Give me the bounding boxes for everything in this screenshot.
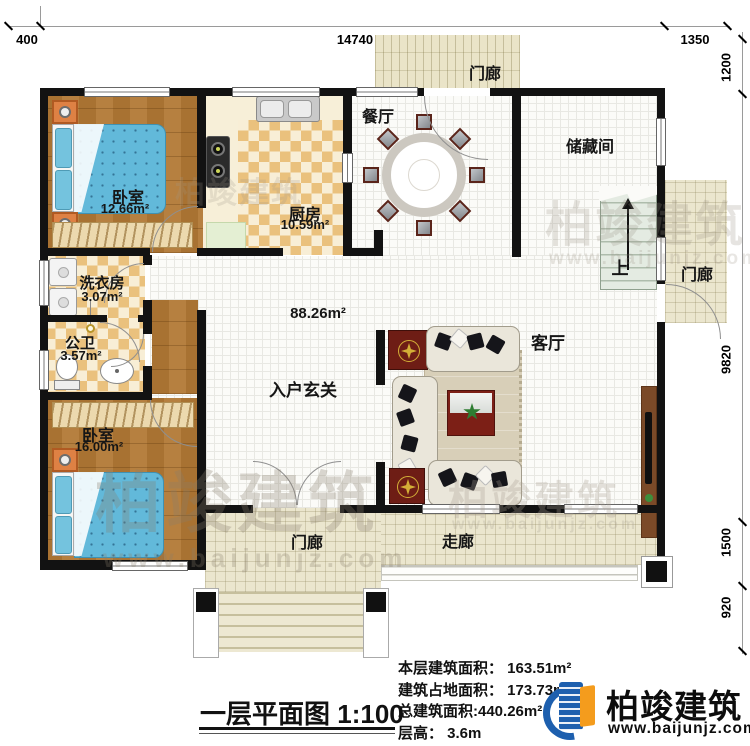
room-label-corridor: 走廊	[430, 528, 486, 552]
info-value: 440.26m²	[478, 703, 542, 720]
corridor-steps	[381, 565, 638, 581]
stove-burner	[211, 142, 225, 156]
window	[84, 87, 170, 97]
info-label: 总建筑面积:	[398, 703, 478, 720]
sink-drain	[115, 369, 119, 373]
side-table	[388, 330, 428, 370]
room-label-porch-right: 门廊	[669, 261, 725, 285]
stairs-up-arrow	[622, 198, 634, 209]
wall-segment	[205, 505, 253, 513]
wall-segment	[343, 183, 352, 256]
window	[656, 237, 666, 281]
dim-14740: 14740	[325, 32, 385, 47]
washer-door	[58, 297, 69, 308]
floor-plan-canvas: 柏竣建筑 www.baijunjz.com 柏竣建筑 www.baijunjz.…	[0, 0, 750, 746]
info-label: 本层建筑面积：	[398, 660, 507, 677]
wall-segment	[197, 248, 283, 256]
washer-door	[58, 267, 69, 278]
title-underline-thin	[199, 733, 395, 734]
dining-table-center	[408, 159, 440, 191]
dining-chair	[363, 167, 379, 183]
corridor-column	[646, 561, 667, 582]
logo-building-orange-icon	[580, 685, 595, 727]
info-label: 层高：	[398, 725, 447, 742]
window	[422, 504, 500, 514]
room-label-entry: 入户玄关	[258, 376, 348, 401]
window	[112, 561, 188, 571]
side-table	[389, 468, 425, 504]
wall-segment	[376, 330, 385, 385]
window	[356, 87, 418, 97]
nightstand-speaker	[59, 454, 71, 466]
window	[656, 118, 666, 166]
wall-segment	[500, 505, 564, 513]
dining-chair	[416, 220, 432, 236]
porch-column-right	[366, 592, 386, 612]
coffee-table	[447, 390, 495, 436]
burner-center	[216, 147, 220, 151]
wall-segment	[374, 230, 383, 256]
bed-pillow	[55, 476, 72, 514]
dining-chair	[469, 167, 485, 183]
wall-segment	[512, 93, 521, 257]
dim-400: 400	[10, 32, 44, 47]
room-area-bath: 3.57m²	[48, 348, 114, 363]
hall-area-label: 88.26m²	[282, 305, 354, 322]
nightstand	[52, 100, 78, 124]
dim-1350: 1350	[670, 32, 720, 47]
room-label-storage: 储藏间	[550, 133, 630, 157]
wall-segment	[143, 322, 152, 334]
dim-1500: 1500	[719, 523, 734, 563]
kitchen-mat	[206, 222, 246, 250]
info-value: 3.6m	[447, 725, 481, 742]
door-opening	[657, 284, 665, 322]
room-label-porch-top: 门廊	[455, 60, 515, 84]
sink-basin	[260, 100, 284, 118]
toilet-tank	[54, 380, 80, 390]
door-opening	[424, 88, 490, 96]
info-value: 163.51m²	[507, 660, 571, 677]
title-underline-thick	[199, 727, 395, 730]
wall-segment	[143, 366, 152, 394]
window	[232, 87, 320, 97]
plan-title-text: 一层平面图	[200, 699, 330, 729]
wall-segment	[197, 93, 206, 208]
wall-segment	[512, 88, 665, 96]
dim-920: 920	[719, 588, 734, 628]
porch-column-left	[196, 592, 216, 612]
nightstand-speaker	[59, 106, 71, 118]
wall-segment	[197, 310, 206, 392]
dimension-line-right	[742, 32, 743, 654]
sink-basin	[288, 100, 312, 118]
plan-title-scale: 1:100	[337, 699, 404, 729]
dimension-line-top	[8, 26, 730, 27]
room-area-laundry: 3.07m²	[70, 289, 134, 304]
bed-pillow	[55, 128, 72, 168]
sofa-cushion	[491, 471, 508, 488]
burner-center	[216, 169, 220, 173]
wall-segment	[143, 255, 152, 265]
entry-steps	[219, 592, 363, 652]
window	[342, 153, 353, 183]
info-line: 本层建筑面积： 163.51m²	[398, 658, 571, 680]
wall-segment	[40, 392, 152, 400]
wall-segment	[40, 248, 150, 256]
plan-title: 一层平面图 1:100	[200, 694, 420, 731]
wall-segment	[376, 462, 385, 510]
wall-segment	[197, 392, 206, 564]
room-label-porch-bottom: 门廊	[275, 529, 339, 553]
dim-9820: 9820	[719, 340, 734, 380]
room-area-kitchen: 10.59m²	[272, 217, 338, 232]
stairs-up-label: 上	[606, 254, 634, 279]
info-label: 建筑占地面积：	[398, 682, 507, 699]
window	[564, 504, 638, 514]
logo-website: www.baijunjz.com	[608, 720, 750, 738]
room-area-bedroom1: 12.66m²	[80, 201, 170, 216]
room-label-living: 客厅	[520, 329, 576, 354]
wall-segment	[45, 315, 107, 322]
dimension-extension	[40, 6, 41, 26]
kitchen-tile	[238, 120, 348, 255]
tv	[645, 412, 652, 484]
stove-burner	[211, 164, 225, 178]
bed-pillow	[55, 516, 72, 554]
wall-segment	[143, 300, 152, 322]
bed-pillow	[55, 170, 72, 210]
wall-segment	[40, 88, 48, 570]
dim-1200: 1200	[719, 48, 734, 88]
vestibule-floor	[152, 300, 198, 394]
room-label-dining: 餐厅	[348, 103, 408, 127]
room-area-bedroom2: 16.00m²	[64, 439, 134, 454]
info-line: 建筑占地面积： 173.73m²	[398, 680, 571, 702]
cabinet-plant	[645, 494, 653, 502]
window	[39, 260, 49, 306]
